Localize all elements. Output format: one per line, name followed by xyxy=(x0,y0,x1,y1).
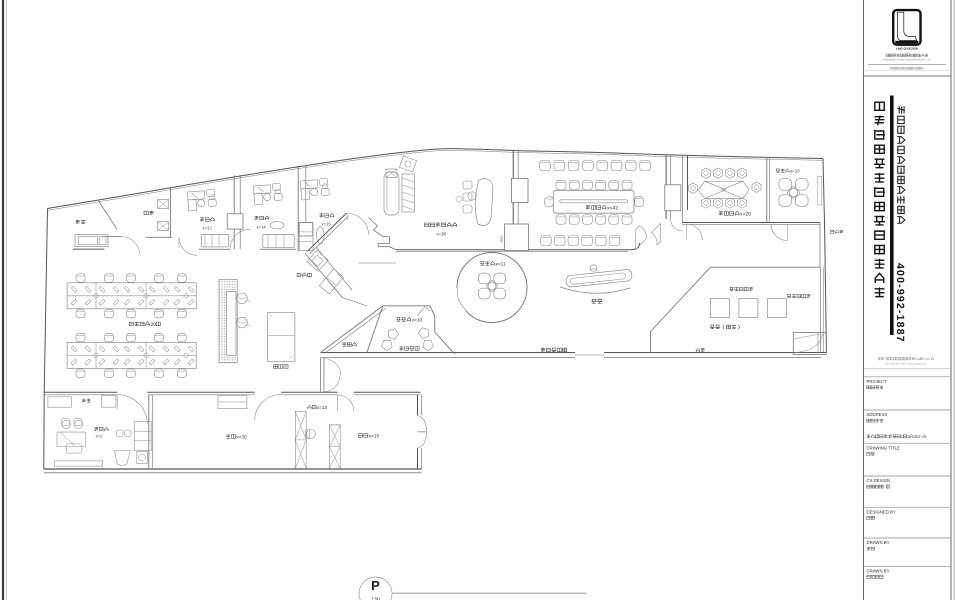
svg-text:LING QI DESIGN: LING QI DESIGN xyxy=(896,46,918,50)
svg-text:x=42: x=42 xyxy=(607,206,618,212)
svg-text:x=10: x=10 xyxy=(412,318,423,324)
svg-text:ADDRESS: ADDRESS xyxy=(867,412,888,417)
svg-text:1:50: 1:50 xyxy=(371,597,380,600)
svg-text:1500: 1500 xyxy=(500,235,504,243)
svg-text:x=10: x=10 xyxy=(790,169,800,174)
svg-text:118: 118 xyxy=(915,357,920,361)
svg-text:TEL:400-992-1887 www.lingqisj: TEL:400-992-1887 www.lingqisj.com xyxy=(885,363,927,366)
svg-text:DRAWING TITLE: DRAWING TITLE xyxy=(867,445,901,450)
svg-text:x=15: x=15 xyxy=(369,434,380,440)
svg-text:x=11: x=11 xyxy=(495,262,506,268)
svg-text:PROJECT: PROJECT xyxy=(867,379,887,384)
svg-text:x=10: x=10 xyxy=(317,405,328,410)
svg-text:x=20: x=20 xyxy=(740,212,751,218)
svg-text:x=12: x=12 xyxy=(203,226,213,231)
svg-text:20: 20 xyxy=(150,322,156,328)
svg-text:DRAWN BY: DRAWN BY xyxy=(867,540,890,545)
svg-text:DRAWN BY: DRAWN BY xyxy=(867,569,890,574)
svg-text:P: P xyxy=(371,578,380,593)
svg-text:SHANGHAI LINGQI DECORATION CO.: SHANGHAI LINGQI DECORATION CO.,LTD xyxy=(883,59,931,62)
svg-text:x=30: x=30 xyxy=(236,435,247,441)
svg-text:400-992-1887: 400-992-1887 xyxy=(894,263,906,343)
svg-text:DESIGNED BY: DESIGNED BY xyxy=(867,509,897,514)
svg-text:x=15: x=15 xyxy=(322,222,332,227)
svg-text:302: 302 xyxy=(914,434,921,439)
svg-text:x=14: x=14 xyxy=(257,225,267,230)
svg-text:x=36: x=36 xyxy=(436,232,446,237)
svg-text:2701: 2701 xyxy=(923,357,930,361)
svg-text:x=2: x=2 xyxy=(96,434,104,439)
svg-text:.: . xyxy=(884,484,885,489)
svg-text:CS DESIGN: CS DESIGN xyxy=(867,478,891,483)
